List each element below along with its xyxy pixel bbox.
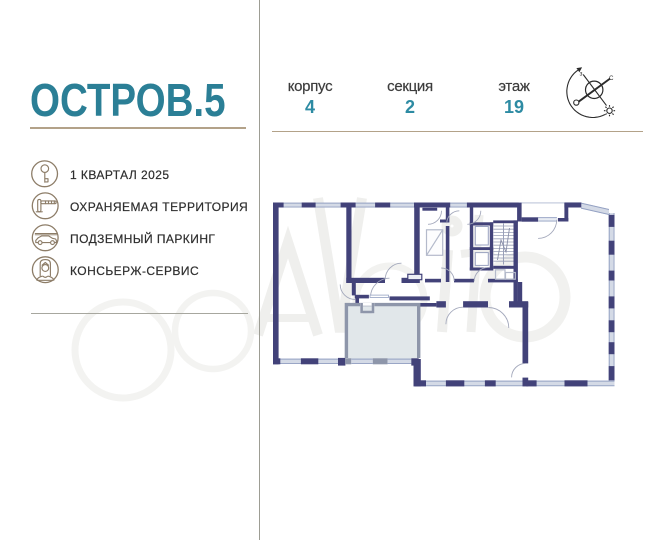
- svg-text:С: С: [609, 75, 614, 82]
- svg-text:з: з: [580, 71, 583, 78]
